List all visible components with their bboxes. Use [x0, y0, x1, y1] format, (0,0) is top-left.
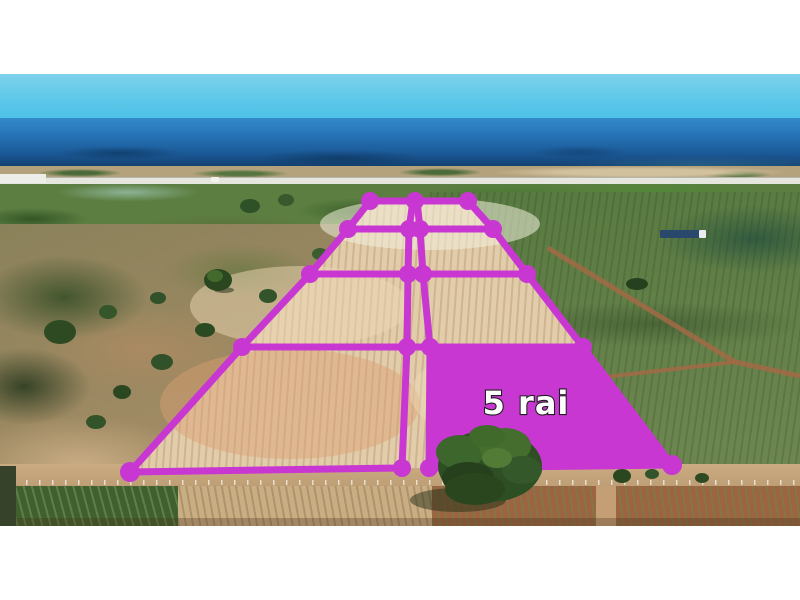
- letterbox-top: [0, 0, 800, 74]
- screenshot-canvas: 5 rai: [0, 0, 800, 600]
- plot-area-label: 5 rai: [483, 384, 570, 422]
- aerial-photo: 5 rai: [0, 74, 800, 526]
- plot-overlay-svg: 5 rai: [0, 74, 800, 526]
- letterbox-bottom: [0, 526, 800, 600]
